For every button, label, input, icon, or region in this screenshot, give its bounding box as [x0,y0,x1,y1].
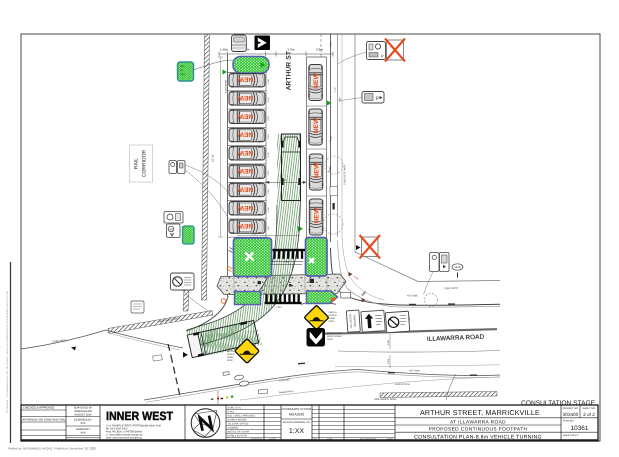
svg-text:CONSULTATION STAGE: CONSULTATION STAGE [521,400,595,407]
svg-text:PROJECT NO.: PROJECT NO. [562,407,578,410]
svg-text:A1 ORIGINAL - THIS DRAWING MUS: A1 ORIGINAL - THIS DRAWING MUST NOT BE S… [6,290,9,413]
svg-text:2 of 2: 2 of 2 [583,412,595,417]
svg-text:INNER WEST: INNER WEST [106,409,174,423]
svg-text:NOTICED: NOTICED [251,438,262,441]
svg-text:2.1m: 2.1m [267,170,270,175]
svg-text:3.2m: 3.2m [316,48,323,52]
svg-text:Web. www.innerwest.nsw.gov: Web. www.innerwest.nsw.gov.au [106,437,143,440]
svg-text:TELSTRA / OPTUS: TELSTRA / OPTUS [228,422,249,425]
svg-text:DATE: DATE [269,438,276,441]
svg-text:ARTHUR ST: ARTHUR ST [286,51,293,90]
svg-text:7m: 7m [283,179,287,182]
svg-text:2.1m: 2.1m [267,152,270,157]
svg-text:KERB & GUTTER: KERB & GUTTER [228,434,248,437]
svg-text:DWY: DWY [330,41,333,47]
svg-text:SURV. LEVL.: SURV. LEVL. [228,406,243,409]
svg-text:PAVED PATH: PAVED PATH [395,383,410,386]
svg-text:HUMP: HUMP [227,356,234,359]
svg-text:2.1m: 2.1m [267,79,270,84]
svg-text:R.M.S.: R.M.S. [228,410,236,413]
svg-text:2.1m: 2.1m [267,225,270,230]
svg-text:Plotted by: MOHAMMED HAQUE,: Plotted by: MOHAMMED HAQUE, Plotted on: … [8,447,96,451]
svg-text:AT ILLAWARRA ROAD: AT ILLAWARRA ROAD [450,419,506,425]
svg-text:XXX: XXX [80,422,85,425]
svg-text:DATE: DATE [327,438,334,441]
svg-text:2.1m: 2.1m [267,189,270,194]
svg-text:CONCRETE PATH: CONCRETE PATH [344,165,347,185]
svg-text:2.1m: 2.1m [267,97,270,102]
svg-text:3.4m: 3.4m [387,340,390,345]
svg-text:SHEET REV #: SHEET REV # [563,434,579,437]
svg-text:DIPPED: DIPPED [329,314,338,317]
svg-text:1.45m: 1.45m [220,48,229,52]
svg-text:1:XX: 1:XX [289,428,305,435]
svg-text:303400: 303400 [563,412,579,417]
svg-text:7.5m: 7.5m [276,306,281,309]
svg-text:HTE KWD: HTE KWD [407,295,418,298]
svg-text:CORRIDOR: CORRIDOR [142,150,148,178]
svg-text:2.1m: 2.1m [267,116,270,121]
svg-text:INSTALL: INSTALL [227,350,236,353]
svg-text:4.8m: 4.8m [284,261,289,264]
svg-text:SHEET NO.: SHEET NO. [583,407,596,410]
svg-text:NO.: NO. [313,438,318,441]
svg-text:PLAN NO.: PLAN NO. [563,420,574,423]
svg-text:INSTALL: INSTALL [329,311,338,314]
svg-text:90°: 90° [180,69,183,72]
svg-text:SPEED: SPEED [227,353,235,356]
svg-text:ADJ. / SHELL PIPELINES: ADJ. / SHELL PIPELINES [228,414,256,417]
svg-text:COORDINATE SYSTEM: COORDINATE SYSTEM [282,408,312,411]
svg-text:AUSGRID: AUSGRID [228,426,239,429]
svg-text:1.8m: 1.8m [339,97,342,102]
svg-text:INSTALL "UNI-: INSTALL "UNI- [327,332,342,335]
svg-text:ARTHUR STREET, MARRICKVILLE: ARTHUR STREET, MARRICKVILLE [420,409,540,417]
svg-text:SIGN: SIGN [329,320,335,323]
svg-text:SIGN: SIGN [227,359,233,362]
svg-text:XXX: XXX [80,432,85,435]
svg-text:P: P [381,54,384,59]
svg-text:10361: 10361 [571,425,589,432]
svg-text:HUMP: HUMP [329,317,336,320]
svg-text:CONSULTATION PLAN-8.8m VEHIC: CONSULTATION PLAN-8.8m VEHICLE TURNING [414,435,542,441]
svg-text:MGA2020: MGA2020 [289,413,304,417]
svg-text:CONC KERB: CONC KERB [225,79,228,93]
svg-text:CHECKED & APPROVED: CHECKED & APPROVED [23,407,54,410]
svg-text:PROPOSED CONTINUOUS FOOTPATH: PROPOSED CONTINUOUS FOOTPATH [429,427,528,433]
svg-text:APPD: APPD [387,438,394,441]
svg-text:DIRECTIONAL": DIRECTIONAL" [327,335,343,338]
svg-text:DESCRIPTION: DESCRIPTION [360,438,377,441]
svg-text:RAIL: RAIL [134,158,140,169]
svg-text:APPROVED FOR CONSTRUCTION: APPROVED FOR CONSTRUCTION [23,419,65,422]
svg-text:HIGH BRICK WALL: HIGH BRICK WALL [374,398,397,401]
svg-text:2.2m: 2.2m [387,359,390,364]
svg-text:NEW: NEW [180,65,185,68]
svg-text:23.7m: 23.7m [212,155,215,162]
svg-text:40: 40 [169,227,173,231]
svg-text:HTE KWD: HTE KWD [409,370,420,373]
svg-text:2.1m: 2.1m [267,134,270,139]
svg-text:SIGN: SIGN [327,338,333,341]
svg-text:AUGUST 2020: AUGUST 2020 [74,413,92,416]
svg-text:PARK: PARK [180,73,186,76]
svg-text:SYDNEY WATER: SYDNEY WATER [228,418,247,421]
svg-text:NOTICE OF ENTRY: NOTICE OF ENTRY [228,430,250,433]
svg-text:CONC PATH: CONC PATH [444,287,458,290]
svg-text:2.1m: 2.1m [267,207,270,212]
svg-text:3.5m: 3.5m [408,317,411,322]
svg-text:SCALES (ORIGINAL A1): SCALES (ORIGINAL A1) [283,421,311,424]
svg-text:24HR: 24HR [454,266,461,269]
svg-text:1.7m: 1.7m [334,87,337,92]
